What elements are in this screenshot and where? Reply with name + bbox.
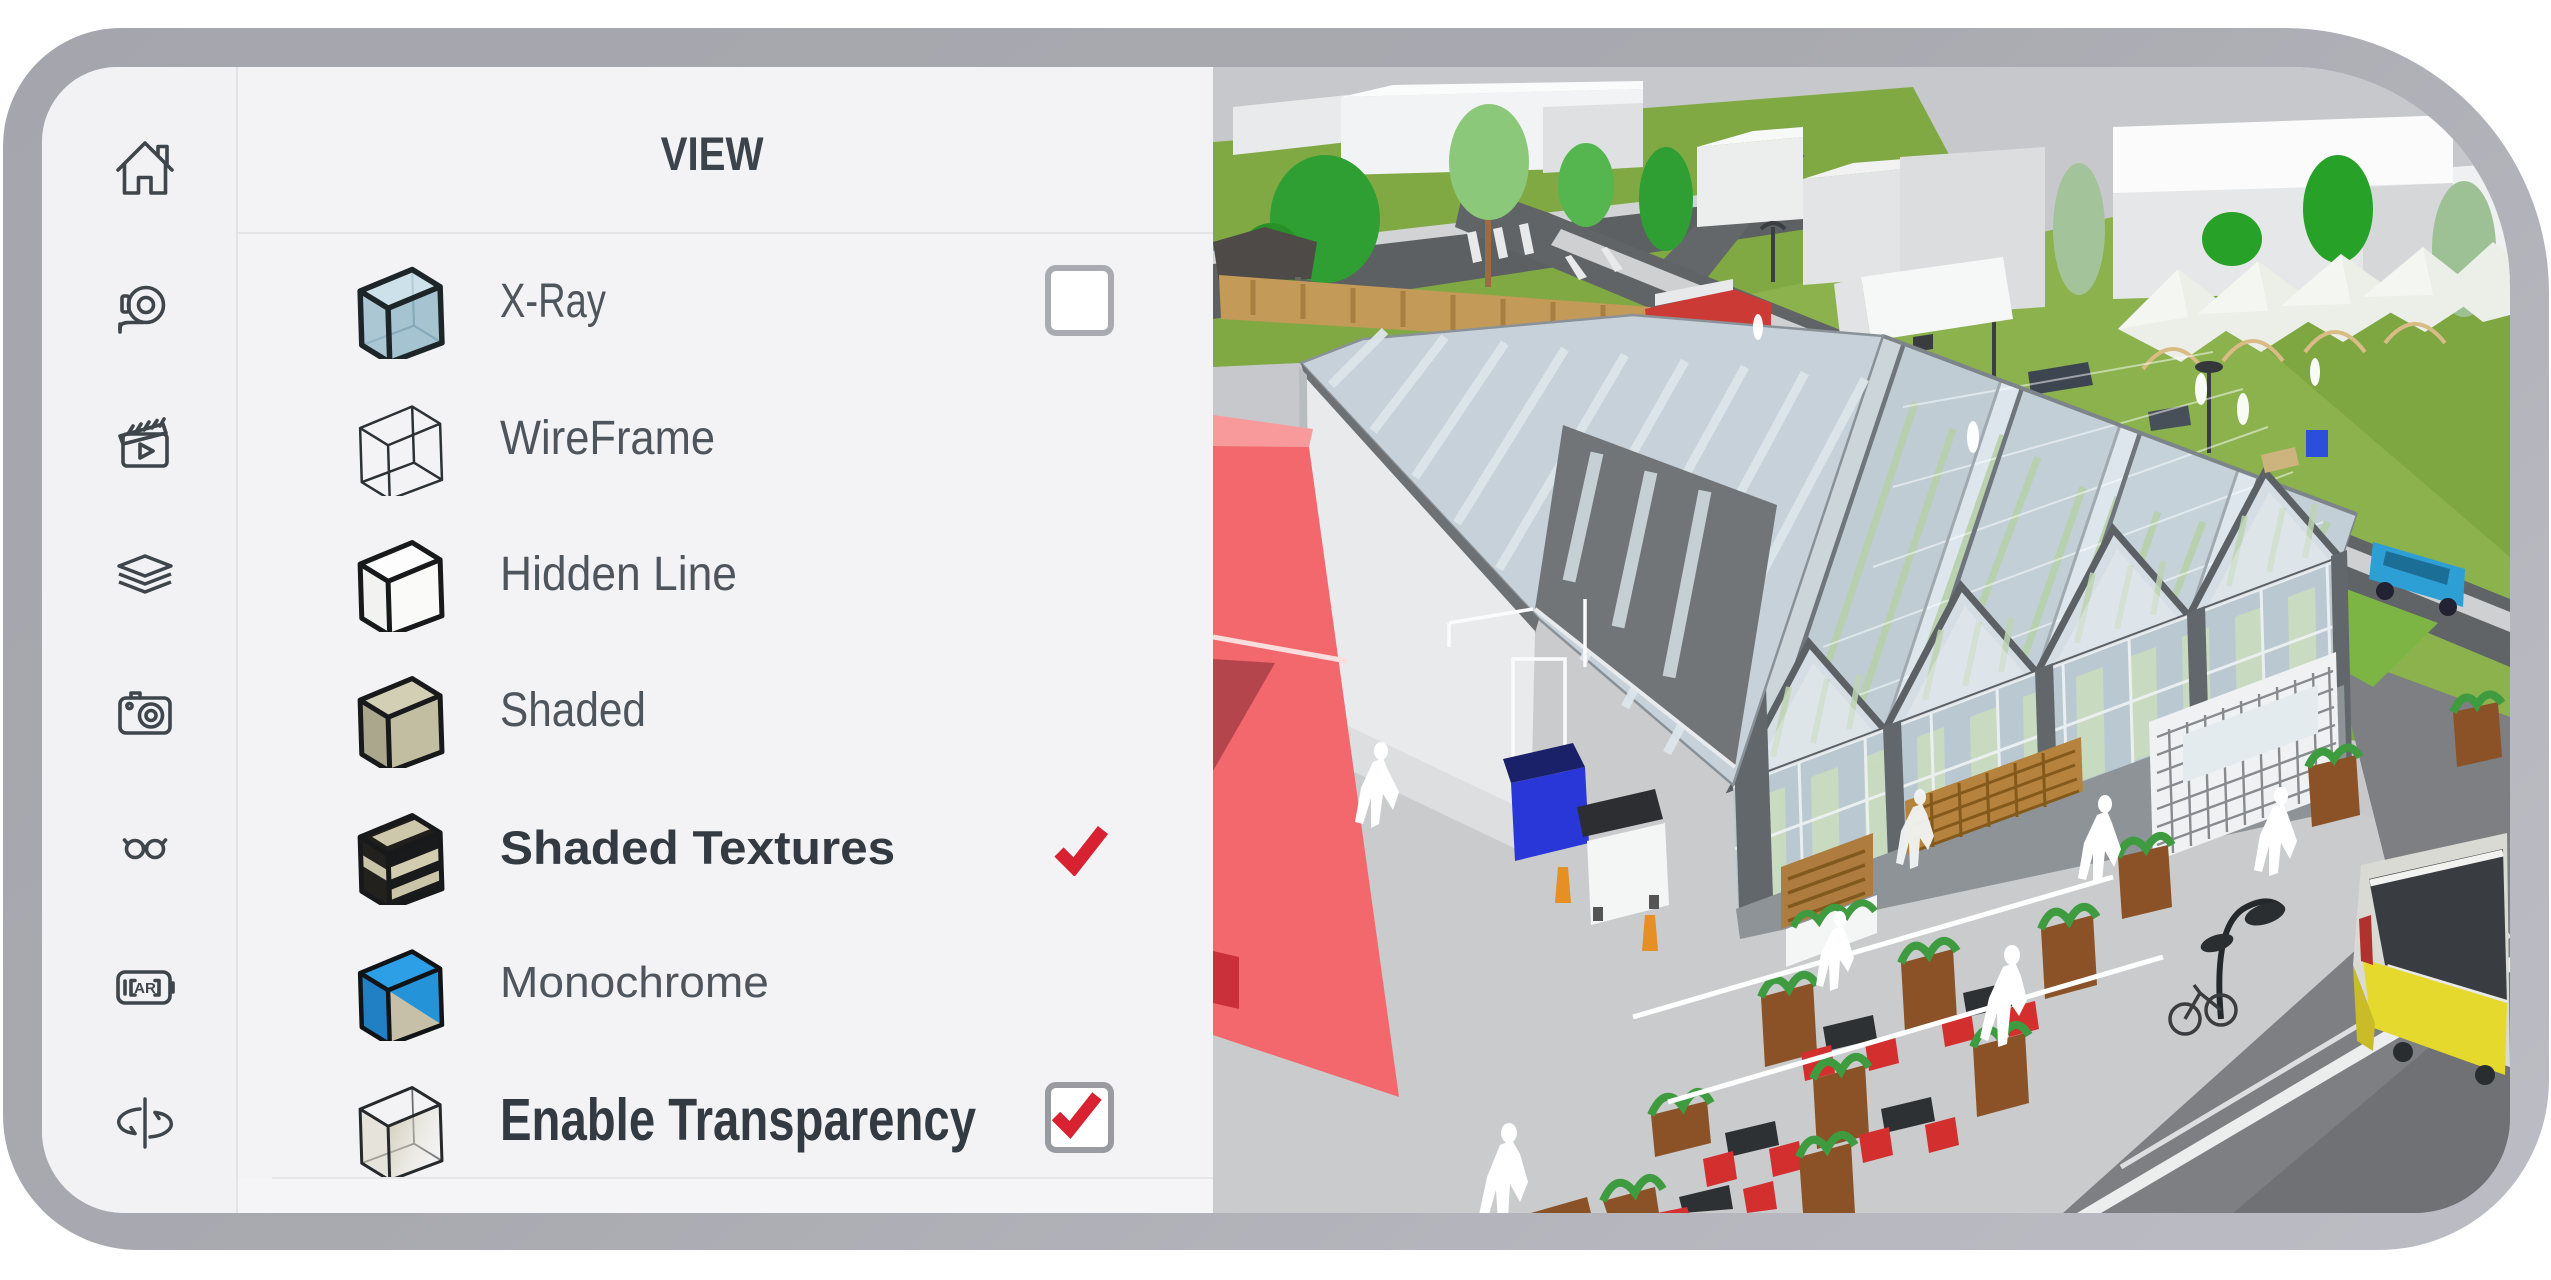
svg-text:AR: AR <box>134 980 156 997</box>
